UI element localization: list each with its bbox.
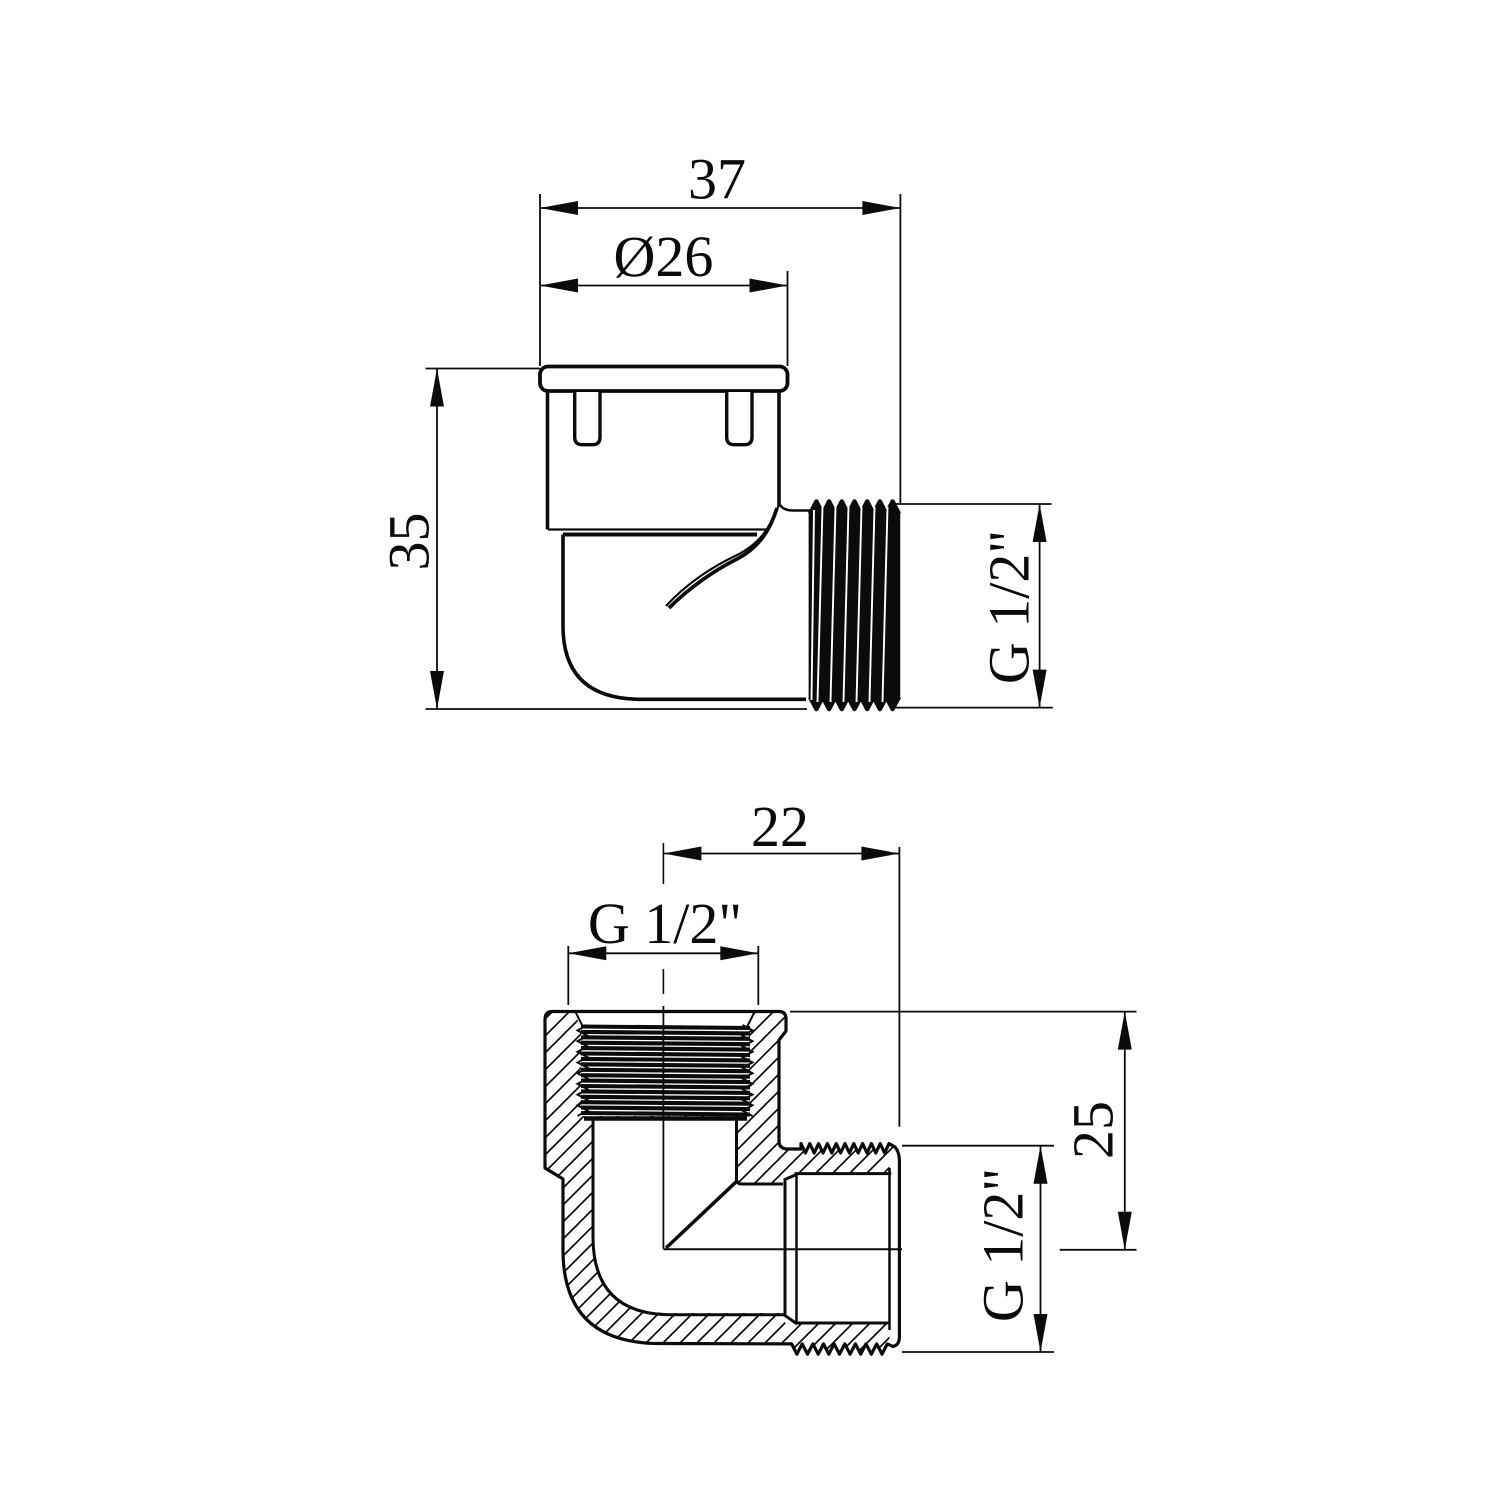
svg-text:22: 22	[751, 794, 809, 859]
svg-text:G 1/2": G 1/2"	[588, 891, 742, 956]
svg-text:G 1/2": G 1/2"	[977, 530, 1042, 684]
svg-text:25: 25	[1061, 1101, 1126, 1159]
svg-text:G 1/2": G 1/2"	[971, 1168, 1036, 1322]
svg-text:Ø26: Ø26	[614, 224, 714, 289]
svg-text:37: 37	[688, 147, 746, 212]
svg-text:35: 35	[377, 513, 442, 571]
